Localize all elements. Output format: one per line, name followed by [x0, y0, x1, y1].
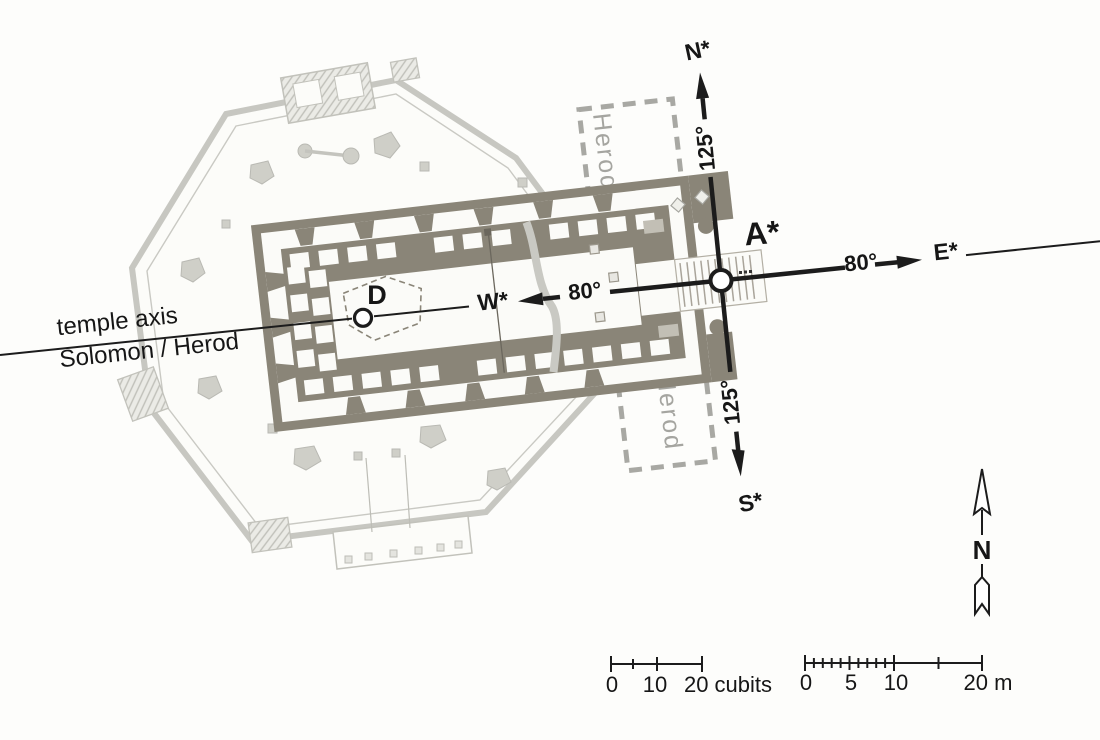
- point-a-label: A*: [743, 213, 782, 252]
- angle-label-west: 80°: [567, 277, 603, 305]
- meters-tick-0: 0: [800, 670, 812, 695]
- compass-north-label: N*: [682, 35, 712, 66]
- compass-east-label: E*: [932, 237, 959, 265]
- angle-label-east: 80°: [843, 248, 879, 276]
- point-a-marker: [711, 270, 732, 291]
- site-plan-figure: Herod Herod: [0, 0, 1100, 740]
- section-line-mark: [484, 228, 492, 236]
- meters-tick-10: 10: [884, 670, 908, 695]
- angle-label-north: 125°: [691, 124, 720, 172]
- meters-tick-5: 5: [845, 670, 857, 695]
- compass-west-label: W*: [476, 287, 509, 316]
- cubits-tick-10: 10: [643, 672, 667, 697]
- angle-label-south: 125°: [716, 378, 745, 426]
- point-d-label: D: [367, 280, 387, 310]
- site-plan-canvas: Herod Herod: [0, 0, 1100, 740]
- gate-northeast: [390, 58, 419, 82]
- north-indicator-label: N: [973, 535, 992, 565]
- cubits-tick-0: 0: [606, 672, 618, 697]
- hatch-patch-upper: [643, 219, 664, 234]
- cubits-tick-20: 20 cubits: [684, 672, 772, 697]
- point-d-marker: [355, 309, 372, 326]
- hatch-patch-lower: [658, 324, 679, 338]
- temple-wing-se: [706, 332, 737, 383]
- meters-tick-20: 20 m: [964, 670, 1013, 695]
- gate-southwest: [248, 517, 292, 552]
